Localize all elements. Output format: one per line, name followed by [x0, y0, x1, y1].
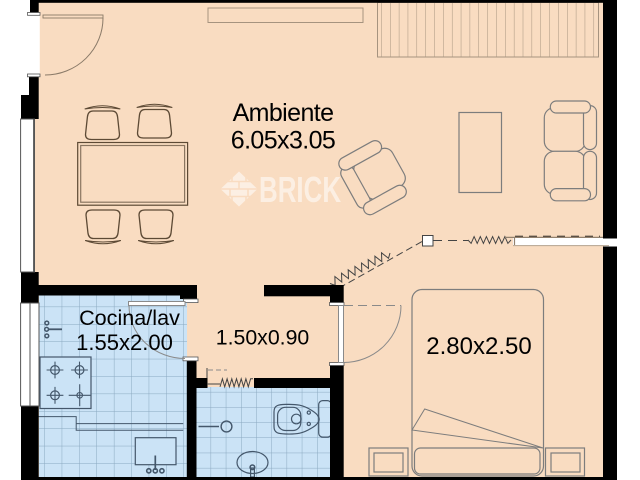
svg-text:1.55x2.00: 1.55x2.00: [76, 330, 173, 355]
svg-text:1.50x0.90: 1.50x0.90: [216, 326, 310, 350]
svg-text:BRICK: BRICK: [259, 170, 341, 210]
svg-text:2.80x2.50: 2.80x2.50: [426, 333, 531, 360]
svg-text:Ambiente: Ambiente: [233, 99, 334, 127]
svg-text:6.05x3.05: 6.05x3.05: [231, 126, 335, 154]
svg-text:Cocina/lav: Cocina/lav: [79, 305, 180, 330]
